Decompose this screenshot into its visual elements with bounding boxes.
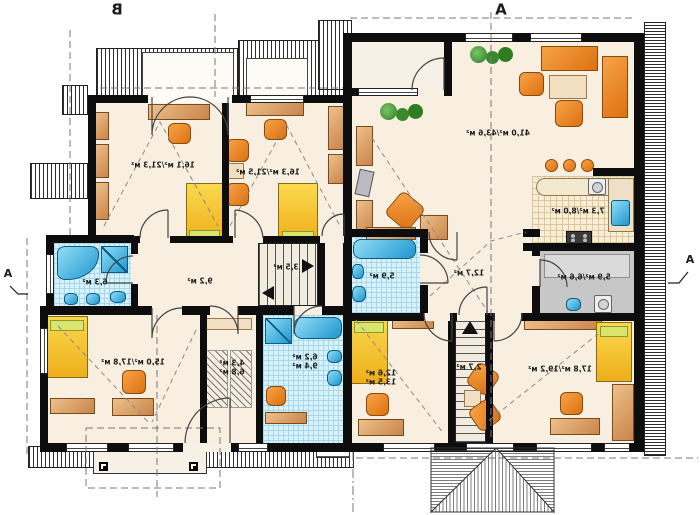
section-title-a: A <box>495 1 507 20</box>
porch-hip-roof <box>431 448 554 512</box>
room-label-a-kitchen: 7,3 м²/8,0 м² <box>551 206 604 215</box>
room-label-b-wardrobe: 4,3 м²6,8 м² <box>219 359 244 378</box>
door-arcs <box>106 58 567 443</box>
room-label-b-hall: 9,2 м² <box>187 276 212 285</box>
room-label-b1: 16,1 м²/21,3 м² <box>131 160 195 169</box>
room-label-b-stairs: 3,5 м² <box>273 262 298 271</box>
section-marker-left: А <box>4 267 13 281</box>
section-title-b: B <box>111 1 122 20</box>
axis-dashed-lines <box>27 12 698 512</box>
section-marker-right: А <box>686 253 695 267</box>
room-label-a-bath: 5,9 м² <box>369 271 394 280</box>
room-label-b2: 16,3 м²/21,5 м² <box>236 167 300 176</box>
room-label-b-bath-lower: 6,2 м²9,4 м² <box>292 353 317 372</box>
plan-linework <box>0 0 700 515</box>
room-label-a-bedroom-left: 12,6 м²13,5 м² <box>366 369 397 388</box>
room-label-a-hall: 12,7 м² <box>454 268 485 277</box>
room-label-b-bedroom: 15,0 м²/17,8 м² <box>101 357 165 366</box>
floor-plan: B A А А 16,1 м²/21,3 м² 16,3 м²/21,5 м² … <box>0 0 700 515</box>
room-label-a-living: 41,0 м²/43,6 м² <box>466 128 530 137</box>
room-label-b-bath-upper: 6,3 м² <box>82 277 107 286</box>
room-label-a-bedroom-right: 17,8 м²/19,2 м² <box>528 364 592 373</box>
room-label-a-utility: 5,9 м²/6,6 м² <box>557 272 610 281</box>
room-label-a-stairs: 2,7 м² <box>456 362 481 371</box>
